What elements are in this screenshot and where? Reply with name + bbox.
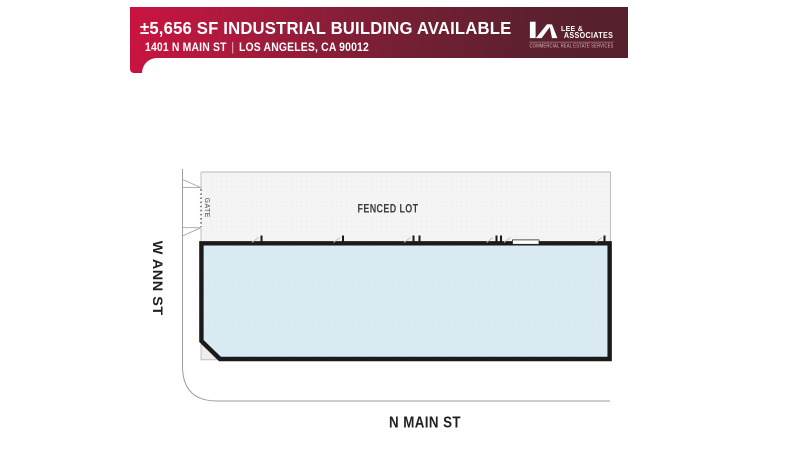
svg-text:GATE: GATE — [203, 198, 212, 218]
svg-text:W ANN ST: W ANN ST — [150, 241, 166, 316]
svg-text:FENCED LOT: FENCED LOT — [358, 202, 419, 215]
svg-text:N MAIN ST: N MAIN ST — [389, 415, 461, 432]
